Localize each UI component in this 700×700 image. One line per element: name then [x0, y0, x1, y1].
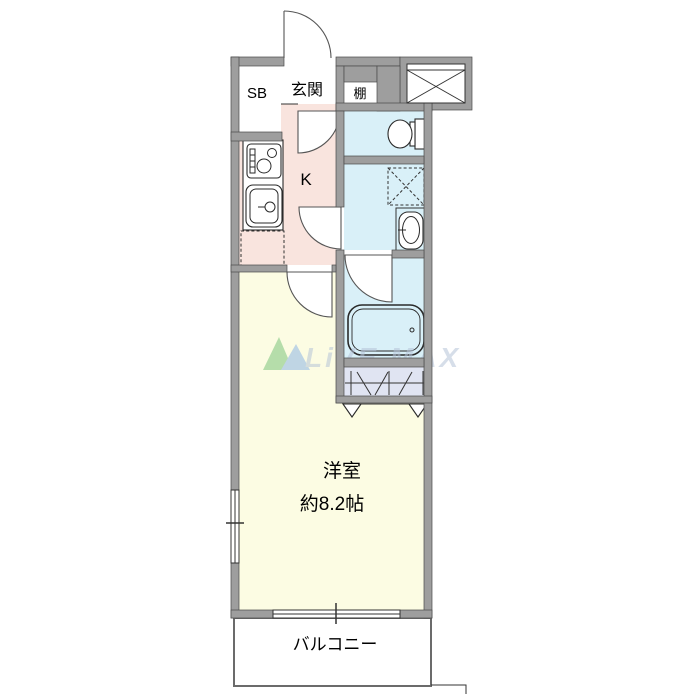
watermark-text: LiVE MAX	[305, 342, 461, 373]
label-shoe-box: SB	[247, 85, 267, 102]
stove-icon	[247, 144, 281, 178]
label-kitchen: K	[300, 170, 312, 189]
balcony-side-line	[431, 685, 466, 694]
label-shelf: 棚	[353, 86, 366, 101]
label-entrance: 玄関	[291, 81, 323, 99]
label-main-room-name: 洋室	[323, 460, 361, 482]
entrance-door	[284, 11, 331, 58]
sink-icon	[246, 185, 282, 227]
floorplan-image: LiVE MAX	[0, 0, 700, 700]
label-main-room-size: 約8.2帖	[300, 493, 364, 515]
floorplan-svg: LiVE MAX	[0, 0, 700, 700]
shaft-x-icon	[407, 64, 465, 103]
toilet-icon	[388, 119, 426, 149]
label-balcony: バルコニー	[293, 635, 378, 654]
